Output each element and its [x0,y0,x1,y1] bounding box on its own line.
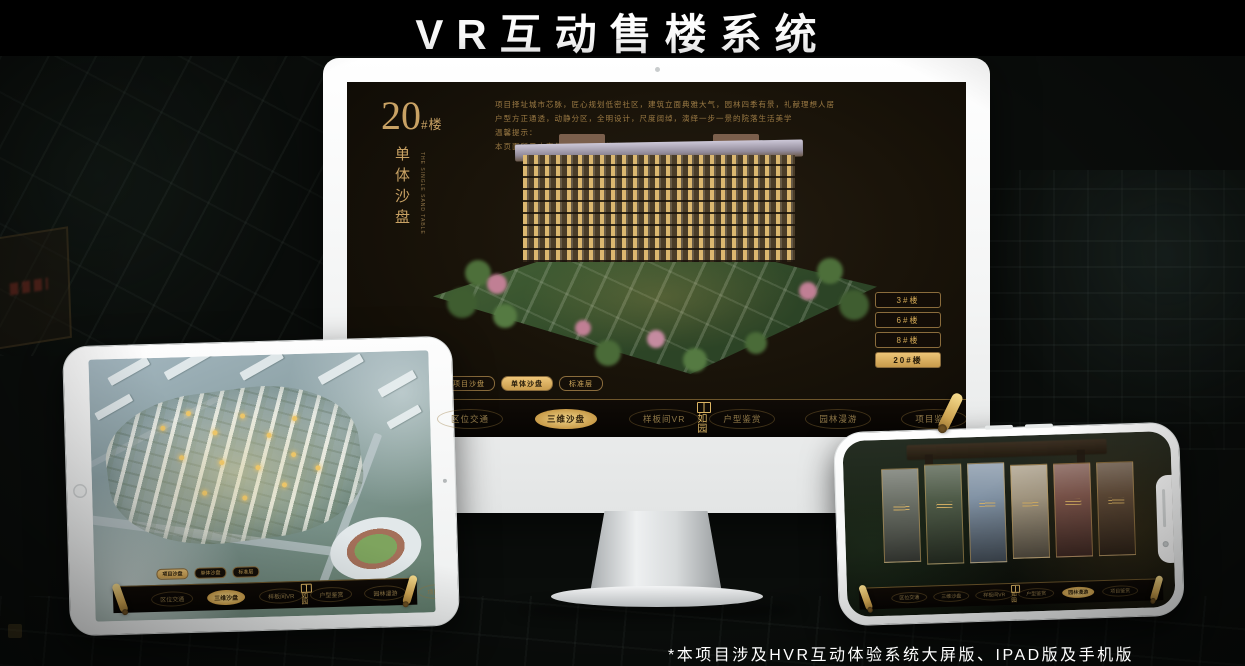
scroll-menu-icon[interactable] [858,584,873,611]
front-camera-icon [1163,541,1169,547]
nav-item[interactable]: 区位交通 [893,592,925,604]
phone-screen: 区位交通三维沙盘样板间VR 如园 户型鉴赏园林漫游项目鉴赏 [842,431,1175,617]
building-marker[interactable] [315,465,320,470]
description-line: 项目择址城市芯脉，匠心规划低密社区，建筑立面典雅大气，园林四季有景，礼献理想人居 [495,98,925,112]
tree [447,288,477,318]
building-number: 20#楼 [381,96,443,136]
nav-item[interactable]: 三维沙盘 [535,409,597,429]
gallery-card[interactable] [1096,461,1136,556]
footnote: *本项目涉及HVR互动体验系统大屏版、IPAD版及手机版 [668,641,1134,665]
subtab[interactable]: 标准层 [559,376,603,391]
subtab[interactable]: 单体沙盘 [194,567,226,579]
gallery-card[interactable] [881,468,921,563]
building-marker[interactable] [292,416,297,421]
tree [493,304,517,328]
nav-item[interactable]: 户型鉴赏 [312,586,350,602]
gallery-card[interactable] [1010,464,1050,559]
city-block [94,394,133,421]
flower-tree [647,330,665,348]
building-marker[interactable] [267,433,272,438]
building-marker[interactable] [240,413,245,418]
speaker-icon [1162,489,1166,527]
building-marker[interactable] [212,430,217,435]
card-caption [1022,500,1038,506]
nav-item[interactable]: 样板间VR [977,589,1011,601]
background-plaque [0,226,72,349]
city-block [239,350,283,380]
flower-tree [487,274,507,294]
building-marker[interactable] [219,460,224,465]
city-block [387,405,422,430]
building-marker[interactable] [202,491,207,496]
nav-item[interactable]: 项目鉴赏 [420,583,435,599]
tablet-nav-bar: 区位交通三维沙盘样板间VR 如园 户型鉴赏园林漫游项目鉴赏 [113,578,418,613]
floor-button[interactable]: 6#楼 [875,312,941,328]
gallery-card[interactable] [1053,462,1093,557]
phone-nav-bar: 区位交通三维沙盘样板间VR 如园 户型鉴赏园林漫游项目鉴赏 [859,578,1164,610]
nav-left-group: 区位交通三维沙盘样板间VR [893,589,1011,604]
desktop-subtabs: 项目沙盘单体沙盘标准层 [443,376,603,391]
nav-item[interactable]: 三维沙盘 [207,589,245,605]
background-logo-chip [8,624,22,638]
nav-item[interactable]: 样板间VR [631,409,697,429]
nav-left-group: 区位交通三维沙盘样板间VR [153,587,302,606]
city-block [378,370,417,398]
flower-tree [799,282,817,300]
gallery-card[interactable] [924,463,964,564]
subtab[interactable]: 单体沙盘 [501,376,553,391]
tablet-subtabs: 项目沙盘单体沙盘标准层 [156,566,259,580]
card-caption [1065,499,1081,505]
nav-right-group: 户型鉴赏园林漫游项目鉴赏 [312,583,435,602]
logo-seal-icon [697,402,711,413]
gallery-card[interactable] [967,462,1007,563]
webcam-dot-icon [655,67,660,72]
nav-item[interactable]: 区位交通 [153,590,191,606]
floor-button[interactable]: 3#楼 [875,292,941,308]
panorama-gallery [881,456,1136,568]
monitor-stand-base [551,586,763,607]
card-caption [936,502,952,508]
tree [683,348,707,372]
building-marker[interactable] [186,411,191,416]
card-caption [979,501,995,507]
nav-left-group: 区位交通三维沙盘样板间VR [439,409,697,429]
scroll-menu-icon[interactable] [111,583,129,614]
background-map-right [985,170,1245,450]
card-caption [893,504,909,510]
scroll-menu-icon[interactable] [1150,575,1164,602]
nav-right-group: 户型鉴赏园林漫游项目鉴赏 [711,409,965,429]
tree [817,258,843,284]
section-title-vertical: 单体沙盘 [391,146,412,230]
city-block [107,356,150,386]
building-marker[interactable] [291,452,296,457]
subtab[interactable]: 标准层 [232,566,259,578]
nav-item[interactable]: 区位交通 [439,409,501,429]
nav-item[interactable]: 样板间VR [261,587,302,603]
tree [595,340,621,366]
phone-device: 区位交通三维沙盘样板间VR 如园 户型鉴赏园林漫游项目鉴赏 [833,422,1185,627]
card-caption [1108,497,1124,503]
tablet-screen: 项目沙盘单体沙盘标准层 区位交通三维沙盘样板间VR 如园 户型鉴赏园林漫游项目鉴… [88,350,435,621]
nav-item[interactable]: 项目鉴赏 [1104,585,1136,597]
floor-button[interactable]: 20#楼 [875,352,941,368]
nav-item[interactable]: 园林漫游 [366,585,404,601]
nav-item[interactable]: 园林漫游 [1062,586,1094,598]
building-model [523,142,795,262]
description-line: 户型方正通透，动静分区，全明设计，尺度阔绰，演绎一步一景的院落生活美学 [495,112,925,126]
city-block [318,353,364,385]
logo-seal-icon [301,583,312,592]
promo-canvas: VR互动售楼系统 20#楼 单体沙盘 THE SINGLE SAND TABLE… [0,0,1245,666]
building-number-suffix: #楼 [421,117,443,132]
page-title: VR互动售楼系统 [0,1,1245,62]
building-facade [523,155,795,262]
nav-item[interactable]: 园林漫游 [807,409,869,429]
nav-item[interactable]: 三维沙盘 [935,590,967,602]
section-title-english: THE SINGLE SAND TABLE [419,152,425,235]
subtab[interactable]: 项目沙盘 [156,568,188,580]
nav-item[interactable]: 户型鉴赏 [711,409,773,429]
tablet-device: 项目沙盘单体沙盘标准层 区位交通三维沙盘样板间VR 如园 户型鉴赏园林漫游项目鉴… [62,336,460,637]
nav-right-group: 户型鉴赏园林漫游项目鉴赏 [1020,585,1136,600]
flower-tree [575,320,591,336]
monitor-stand-neck [590,511,722,593]
floor-button[interactable]: 8#楼 [875,332,941,348]
tree [839,290,869,320]
tree [745,332,767,354]
volume-button[interactable] [1025,424,1053,429]
nav-item[interactable]: 户型鉴赏 [1020,588,1052,600]
floor-button-group: 3#楼6#楼8#楼20#楼 [875,292,941,368]
